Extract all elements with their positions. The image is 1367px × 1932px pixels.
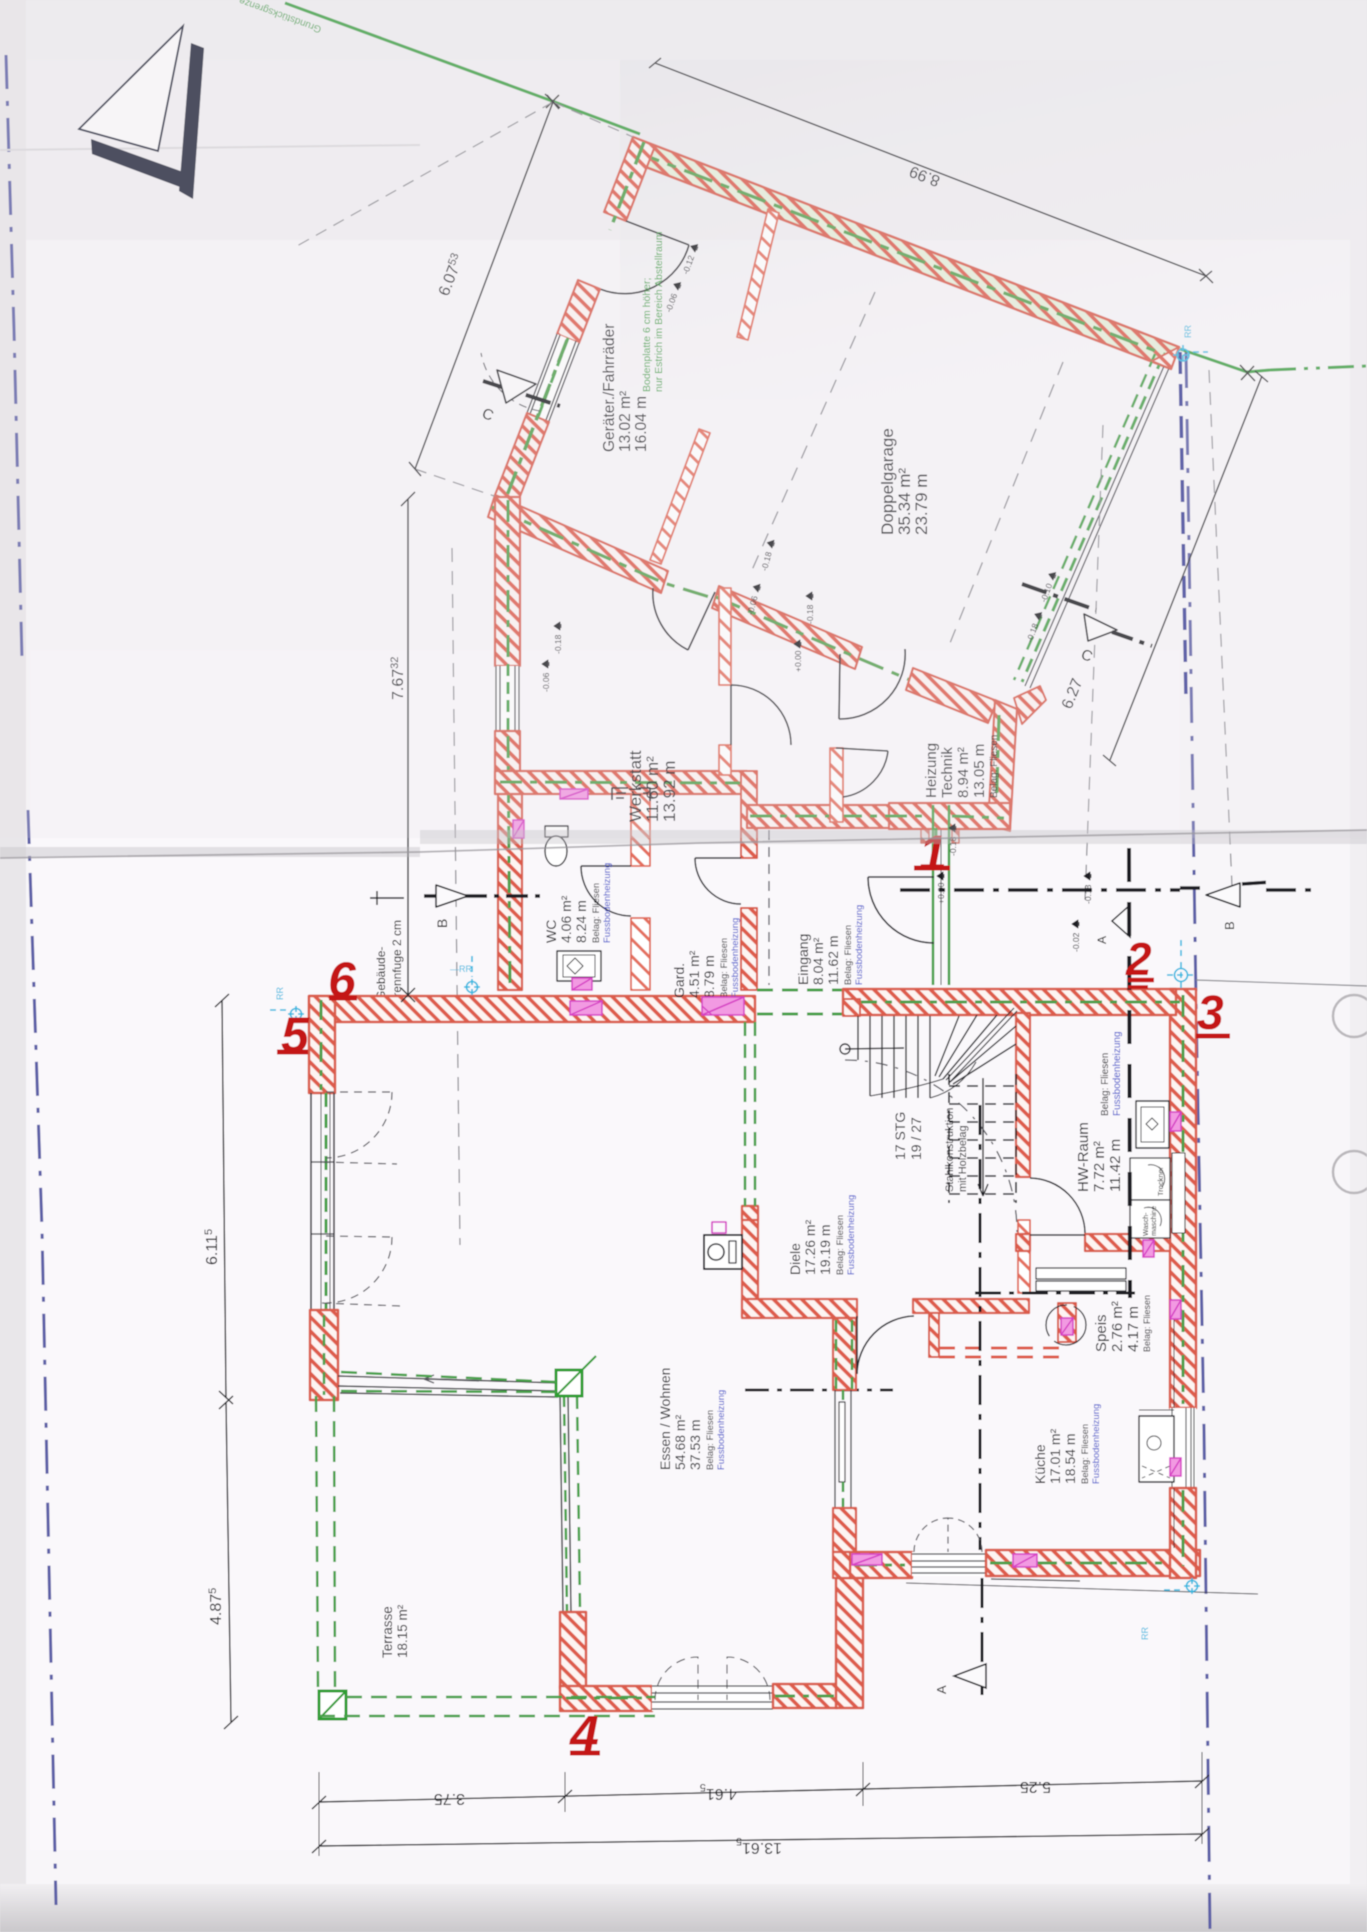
svg-text:7.72 m²: 7.72 m²: [1091, 1141, 1108, 1192]
svg-text:4.51 m²: 4.51 m²: [686, 950, 702, 998]
svg-text:2.76 m²: 2.76 m²: [1109, 1301, 1126, 1352]
svg-text:8.04 m²: 8.04 m²: [810, 937, 826, 985]
svg-text:17 STG: 17 STG: [892, 1112, 908, 1160]
svg-text:Fussbodenheizung: Fussbodenheizung: [730, 918, 741, 998]
svg-text:37.53 m: 37.53 m: [687, 1419, 703, 1470]
svg-text:RR: RR: [1140, 1627, 1150, 1640]
svg-text:Wasch-: Wasch-: [1143, 1212, 1150, 1236]
svg-text:—RR: —RR: [450, 964, 472, 974]
svg-text:17.26 m²: 17.26 m²: [802, 1219, 818, 1275]
svg-text:Fussbodenheizung: Fussbodenheizung: [1091, 1404, 1102, 1484]
svg-text:4.17 m: 4.17 m: [1125, 1306, 1142, 1352]
svg-text:Belag: Fliesen: Belag: Fliesen: [1142, 1295, 1152, 1352]
svg-text:2: 2: [1125, 933, 1152, 985]
svg-text:Eingang: Eingang: [795, 934, 811, 985]
svg-text:Fussbodenheizung: Fussbodenheizung: [716, 1390, 727, 1470]
svg-text:Belag: Fliesen: Belag: Fliesen: [705, 1410, 716, 1470]
svg-text:8.79 m: 8.79 m: [701, 955, 717, 998]
svg-text:Fussbodenheizung: Fussbodenheizung: [1112, 1031, 1123, 1116]
svg-text:Diele: Diele: [787, 1243, 803, 1275]
svg-text:B: B: [1222, 921, 1237, 930]
svg-text:-0.02: -0.02: [1071, 932, 1081, 952]
svg-text:Gebäude-: Gebäude-: [374, 947, 388, 1000]
svg-text:+0.00: +0.00: [936, 882, 946, 904]
svg-text:5: 5: [281, 1007, 310, 1063]
svg-text:4.06 m²: 4.06 m²: [558, 895, 574, 943]
svg-text:HW-Raum: HW-Raum: [1075, 1122, 1092, 1192]
svg-text:Gard.: Gard.: [671, 963, 687, 998]
svg-text:19.19 m: 19.19 m: [817, 1224, 833, 1275]
svg-text:Speis: Speis: [1093, 1314, 1110, 1352]
svg-text:18.15 m²: 18.15 m²: [395, 1604, 410, 1658]
svg-text:Belag: Fliesen: Belag: Fliesen: [843, 925, 854, 985]
svg-text:11.42 m: 11.42 m: [1107, 1139, 1124, 1192]
svg-text:Belag: Fliesen: Belag: Fliesen: [591, 883, 602, 943]
svg-text:WC: WC: [543, 920, 559, 943]
svg-text:B: B: [434, 919, 450, 928]
svg-text:Terrasse: Terrasse: [380, 1606, 395, 1658]
svg-text:54.68 m²: 54.68 m²: [672, 1414, 688, 1470]
svg-text:8.24 m: 8.24 m: [573, 900, 589, 943]
svg-text:maschine: maschine: [1151, 1206, 1158, 1236]
svg-text:Belag: Fliesen: Belag: Fliesen: [1080, 1424, 1091, 1484]
svg-text:-0.18: -0.18: [1083, 884, 1093, 904]
svg-text:Belag: Fliesen: Belag: Fliesen: [835, 1215, 846, 1275]
svg-text:Fussbodenheizung: Fussbodenheizung: [602, 863, 613, 943]
svg-text:A: A: [1095, 936, 1109, 944]
svg-text:mit Holzbelag: mit Holzbelag: [957, 1125, 969, 1192]
svg-text:18.54 m: 18.54 m: [1062, 1433, 1078, 1484]
svg-text:5.25: 5.25: [1020, 1778, 1051, 1795]
svg-text:19 / 27: 19 / 27: [908, 1117, 924, 1160]
svg-text:A: A: [934, 1685, 949, 1694]
svg-text:17.01 m²: 17.01 m²: [1047, 1428, 1063, 1484]
svg-text:Belag: Fliesen: Belag: Fliesen: [1100, 1053, 1111, 1116]
svg-text:Stahlkonstruktion: Stahlkonstruktion: [944, 1108, 956, 1192]
svg-text:Küche: Küche: [1032, 1444, 1048, 1484]
svg-text:Fussbodenheizung: Fussbodenheizung: [846, 1195, 857, 1275]
svg-text:Trockner: Trockner: [1156, 1166, 1165, 1196]
svg-text:3.75: 3.75: [434, 1790, 465, 1807]
svg-text:Belag: Fliesen: Belag: Fliesen: [719, 938, 730, 998]
svg-text:Essen / Wohnen: Essen / Wohnen: [657, 1368, 673, 1470]
svg-text:3: 3: [1197, 987, 1224, 1040]
svg-text:RR: RR: [275, 987, 285, 1000]
svg-text:Fussbodenheizung: Fussbodenheizung: [854, 905, 865, 985]
svg-text:11.62 m: 11.62 m: [825, 935, 841, 985]
